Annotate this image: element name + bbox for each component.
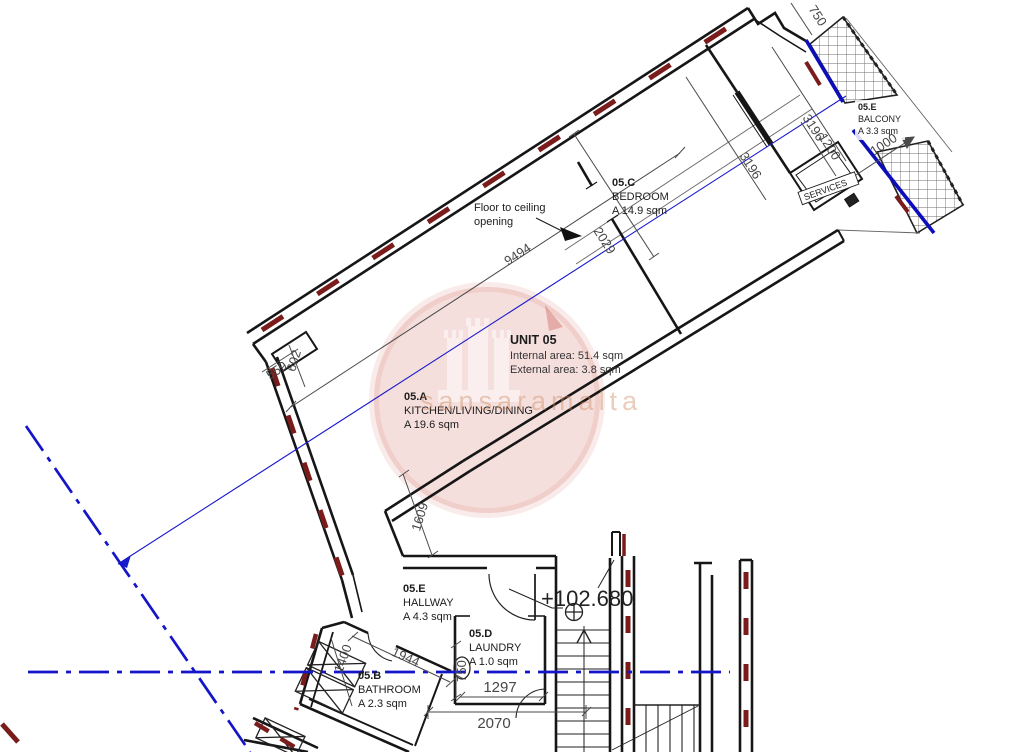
bathroom-code: 05.B bbox=[358, 670, 381, 682]
watermark-text: sansaramalta bbox=[420, 386, 642, 416]
room-label-bathroom: 05.B BATHROOM A 2.3 sqm bbox=[358, 670, 421, 710]
level-value: +102.680 bbox=[541, 586, 633, 611]
floor-opening-note-line2: opening bbox=[474, 216, 513, 228]
laundry-code: 05.D bbox=[469, 628, 492, 640]
dim-1400: 1400 bbox=[331, 642, 355, 674]
unit-external-area: External area: 3.8 sqm bbox=[510, 364, 621, 376]
leader-arrowhead bbox=[560, 227, 582, 241]
dim-1609: 1609 bbox=[408, 501, 431, 533]
dim-1297: 1297 bbox=[483, 679, 516, 696]
dim-9494: 9494 bbox=[501, 240, 533, 268]
laundry-area: A 1.0 sqm bbox=[469, 656, 518, 668]
kitchen-area: A 19.6 sqm bbox=[404, 419, 459, 431]
bedroom-area: A 14.9 sqm bbox=[612, 205, 667, 217]
room-label-bedroom: 05.C BEDROOM A 14.9 sqm bbox=[612, 177, 669, 217]
bedroom-code: 05.C bbox=[612, 177, 635, 189]
dim-750-top: 750 bbox=[806, 2, 830, 28]
unit-internal-area: Internal area: 51.4 sqm bbox=[510, 350, 623, 362]
hallway-code: 05.E bbox=[403, 583, 426, 595]
stairs bbox=[557, 626, 700, 752]
bathroom-name: BATHROOM bbox=[358, 684, 421, 696]
dim-1944: 1944 bbox=[390, 644, 423, 669]
room-label-hallway: 05.E HALLWAY A 4.3 sqm bbox=[403, 583, 454, 623]
hallway-area: A 4.3 sqm bbox=[403, 611, 452, 623]
bedroom-name: BEDROOM bbox=[612, 191, 669, 203]
room-label-laundry: 05.D LAUNDRY A 1.0 sqm bbox=[469, 628, 522, 668]
floor-plan-svg: 05.A KITCHEN/LIVING/DINING A 19.6 sqm 05… bbox=[0, 0, 1022, 752]
balcony-code: 05.E bbox=[858, 102, 877, 112]
floor-opening-note-line1: Floor to ceiling bbox=[474, 202, 546, 214]
hallway-name: HALLWAY bbox=[403, 597, 454, 609]
balcony-name: BALCONY bbox=[858, 114, 901, 124]
bathroom-area: A 2.3 sqm bbox=[358, 698, 407, 710]
unit-title: UNIT 05 bbox=[510, 333, 557, 347]
dim-2070: 2070 bbox=[477, 715, 510, 732]
room-label-balcony: 05.E BALCONY A 3.3 sqm bbox=[855, 100, 905, 140]
drawing-canvas: 05.A KITCHEN/LIVING/DINING A 19.6 sqm 05… bbox=[0, 0, 1022, 752]
dim-3196-bedroom: 3196 bbox=[737, 149, 765, 181]
laundry-name: LAUNDRY bbox=[469, 642, 522, 654]
dim-750-laundry: 750 bbox=[454, 660, 469, 682]
